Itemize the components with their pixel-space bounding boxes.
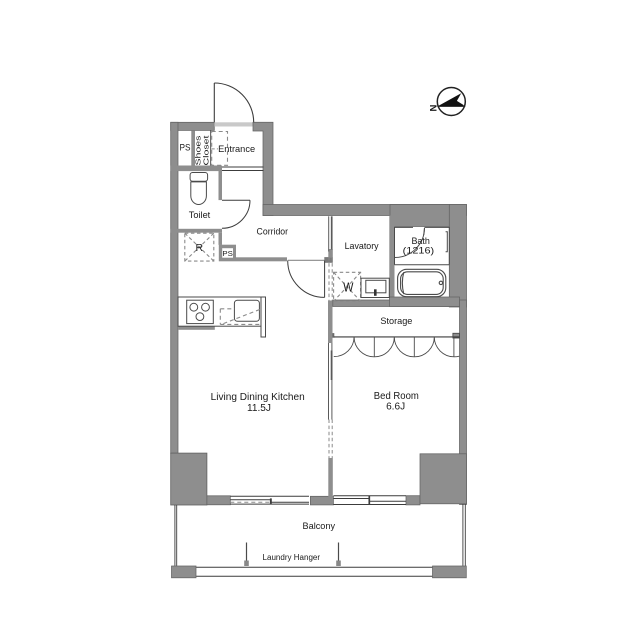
svg-text:Lavatory: Lavatory [345,241,379,252]
svg-text:11.5J: 11.5J [247,403,271,414]
svg-text:N: N [429,104,440,111]
svg-text:Corridor: Corridor [257,227,289,238]
svg-text:W: W [343,281,353,295]
svg-text:PS: PS [180,143,191,153]
svg-text:PS: PS [222,249,233,258]
svg-text:Balcony: Balcony [303,521,336,531]
svg-text:Closet: Closet [201,134,210,165]
svg-text:6.6J: 6.6J [386,401,405,412]
svg-text:Toilet: Toilet [189,210,211,221]
svg-text:Storage: Storage [380,316,412,327]
svg-text:(1216): (1216) [403,245,435,256]
svg-text:Living Dining Kitchen: Living Dining Kitchen [211,392,305,403]
svg-text:Entrance: Entrance [218,144,255,155]
svg-text:R: R [196,242,204,254]
svg-text:Laundry Hanger: Laundry Hanger [263,553,321,562]
